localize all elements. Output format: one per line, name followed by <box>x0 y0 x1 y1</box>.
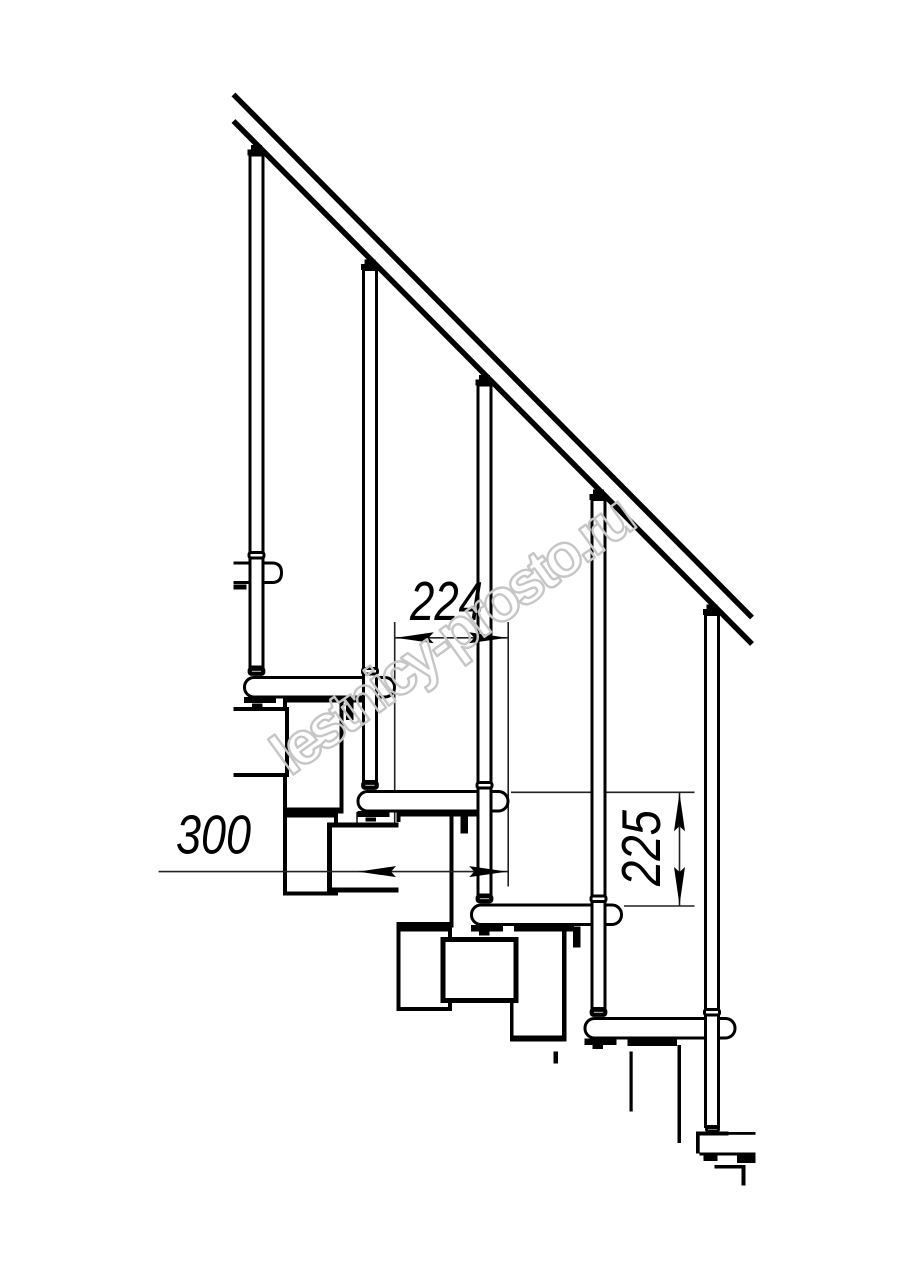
svg-text:300: 300 <box>176 804 251 866</box>
svg-text:225: 225 <box>610 810 672 887</box>
